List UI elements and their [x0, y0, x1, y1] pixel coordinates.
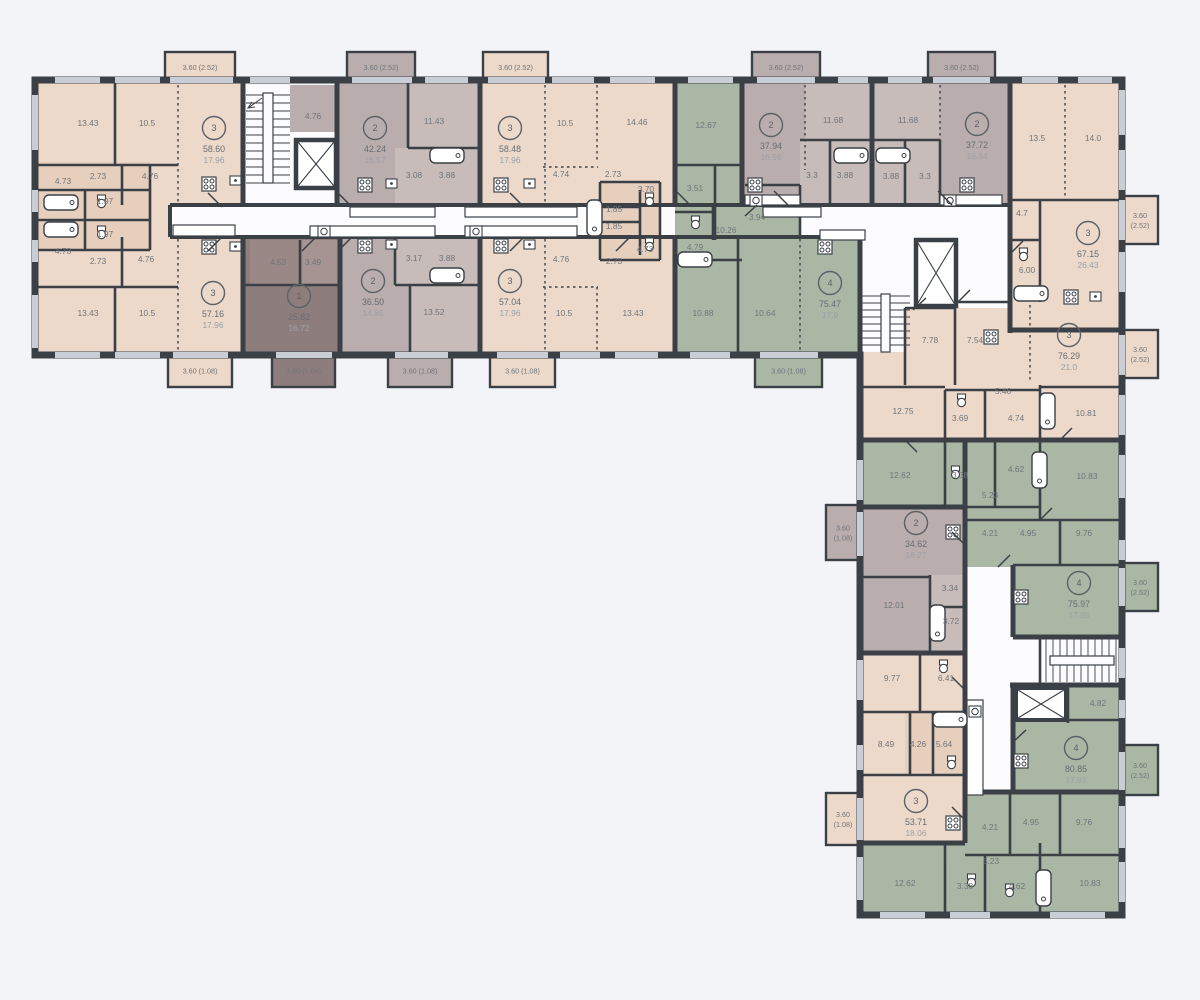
room-area-label: 2.73 [605, 169, 622, 179]
elevator-icon [296, 140, 336, 188]
sink-icon [230, 242, 241, 251]
apartment-total-area: 57.16 [202, 309, 224, 319]
room-area-label: 12.01 [884, 600, 905, 610]
room-area-label: 3.34 [942, 583, 959, 593]
room-area-label: 3.49 [305, 257, 322, 267]
apartment-total-area: 34.62 [905, 539, 927, 549]
room-area-label: 9.76 [1076, 528, 1093, 538]
room-area-label: 10.64 [755, 308, 776, 318]
room-area-label: 2.73 [606, 256, 623, 266]
room-area-label: 4.76 [553, 254, 570, 264]
balcony: 3.60(2.52) [1122, 330, 1158, 378]
balcony-dimension-label: (2.52) [1131, 221, 1150, 230]
room-area-label: 10.5 [139, 308, 156, 318]
apartment-room-count: 3 [507, 123, 512, 133]
balcony-dimension-label: 3.60 (1.08) [771, 367, 806, 376]
balcony: 3.60(1.08) [826, 505, 860, 560]
room-area-label: 3.69 [952, 413, 969, 423]
room-area-label: 7.54 [967, 335, 984, 345]
bathtub-icon [430, 148, 464, 163]
room-region [290, 85, 350, 132]
room-area-label: 4.73 [637, 244, 654, 254]
elevator-icon [916, 240, 956, 306]
toilet-icon [646, 193, 654, 206]
apartment-room-count: 3 [913, 796, 918, 806]
stove-icon [946, 816, 960, 830]
room-area-label: 6.00 [1019, 265, 1036, 275]
elevator-icon [1016, 688, 1066, 720]
room-area-label: 4.62 [1008, 464, 1025, 474]
balcony-dimension-label: (1.08) [834, 534, 853, 543]
stove-icon [748, 178, 762, 192]
apartment-total-area: 67.15 [1077, 249, 1099, 259]
room-area-label: 3.38 [952, 470, 969, 480]
room-region [872, 83, 940, 140]
bathtub-icon [678, 252, 712, 267]
apartment-living-area: 17.96 [500, 155, 521, 165]
room-area-label: 3.88 [439, 170, 456, 180]
washer-icon [318, 226, 330, 237]
apartment-living-area: 21.0 [1061, 362, 1078, 372]
room-region [805, 83, 872, 140]
balcony-dimension-label: 3.60 [1133, 761, 1147, 770]
room-area-label: 2.73 [90, 171, 107, 181]
balcony-dimension-label: 3.60 (1.08) [403, 367, 438, 376]
apartment-total-area: 58.60 [203, 144, 225, 154]
balcony: 3.60 (1.08) [272, 355, 335, 387]
room-area-label: 9.77 [884, 673, 901, 683]
room-area-label: 4.76 [142, 171, 159, 181]
room-area-label: 3.08 [406, 170, 423, 180]
washer-icon [969, 706, 981, 717]
bathtub-icon [1014, 286, 1048, 301]
room-area-label: 3.72 [943, 616, 960, 626]
stove-icon [960, 178, 974, 192]
floor-plan-drawing: 3.60 (2.52)3.60 (2.52)3.60 (2.52)3.60 (2… [0, 0, 1200, 1000]
stove-icon [202, 177, 216, 191]
washer-icon [470, 226, 482, 237]
room-region [410, 285, 480, 352]
apartment-living-area: 17.9 [822, 310, 839, 320]
apartment-room-count: 2 [974, 119, 979, 129]
room-region [410, 83, 480, 148]
room-area-label: 1.97 [97, 196, 114, 206]
room-area-label: 3.17 [406, 253, 423, 263]
bathtub-icon [834, 148, 868, 163]
sink-icon [1090, 292, 1101, 301]
stove-icon [494, 178, 508, 192]
apartment-living-area: 18.06 [906, 828, 927, 838]
room-area-label: 13.43 [623, 308, 644, 318]
room-area-label: 4.76 [305, 111, 322, 121]
room-area-label: 10.81 [1076, 408, 1097, 418]
apartment-room-count: 3 [507, 276, 512, 286]
room-area-label: 11.68 [898, 115, 919, 125]
apartment-room-count: 1 [296, 291, 301, 301]
balcony-dimension-label: 3.60 [1133, 211, 1147, 220]
apartment-room-count: 3 [1085, 228, 1090, 238]
apartment-total-area: 37.94 [760, 141, 782, 151]
room-area-label: 4.74 [553, 169, 570, 179]
balcony-dimension-label: 3.60 [836, 524, 850, 533]
apartment-total-area: 57.04 [499, 297, 521, 307]
room-area-label: 11.68 [823, 115, 844, 125]
apartment-living-area: 17.96 [203, 320, 224, 330]
sink-icon [524, 240, 535, 249]
bathtub-icon [933, 712, 967, 727]
balcony: 3.60(2.52) [1122, 563, 1158, 611]
apartment-room-count: 4 [827, 278, 832, 288]
bathtub-icon [1040, 393, 1055, 429]
apartment-total-area: 80.85 [1065, 764, 1087, 774]
apartment-room-count: 2 [768, 120, 773, 130]
room-area-label: 12.67 [696, 120, 717, 130]
balcony-dimension-label: (1.08) [834, 820, 853, 829]
balcony-dimension-label: 3.60 (2.52) [944, 63, 979, 72]
apartment-room-count: 2 [370, 276, 375, 286]
washer-icon [944, 195, 956, 206]
balcony-dimension-label: 3.60 (2.52) [498, 63, 533, 72]
room-area-label: 10.5 [556, 308, 573, 318]
stove-icon [1014, 754, 1028, 768]
room-area-label: 5.64 [936, 739, 953, 749]
apartment-room-count: 4 [1076, 578, 1081, 588]
balcony: 3.60 (1.08) [388, 355, 452, 387]
room-area-label: 10.83 [1080, 878, 1101, 888]
room-area-label: 10.83 [1077, 471, 1098, 481]
apartment-total-area: 75.97 [1068, 599, 1090, 609]
room-area-label: 4.62 [1009, 881, 1026, 891]
room-area-label: 4.82 [1090, 698, 1107, 708]
room-area-label: 13.43 [78, 118, 99, 128]
stove-icon [202, 240, 216, 254]
floor-plan-page: 3.60 (2.52)3.60 (2.52)3.60 (2.52)3.60 (2… [0, 0, 1200, 1000]
apartment-total-area: 25.82 [288, 312, 310, 322]
room-area-label: 2.73 [90, 256, 107, 266]
apartment-total-area: 58.48 [499, 144, 521, 154]
sink-icon [524, 179, 535, 188]
balcony-dimension-label: (2.52) [1131, 588, 1150, 597]
room-area-label: 8.49 [878, 739, 895, 749]
balcony: 3.60(1.08) [826, 793, 860, 845]
apartment-room-count: 2 [913, 518, 918, 528]
room-area-label: 9.76 [1076, 817, 1093, 827]
balcony: 3.60 (1.08) [490, 355, 555, 387]
room-area-label: 4.95 [1020, 528, 1037, 538]
stove-icon [984, 330, 998, 344]
apartment-room-count: 4 [1073, 743, 1078, 753]
stove-icon [818, 240, 832, 254]
balcony-dimension-label: 3.60 (1.08) [183, 367, 218, 376]
room-area-label: 10.5 [139, 118, 156, 128]
toilet-icon [958, 394, 966, 407]
apartment-total-area: 53.71 [905, 817, 927, 827]
balcony-dimension-label: 3.60 (2.52) [769, 63, 804, 72]
room-area-label: 13.5 [1029, 133, 1046, 143]
room-area-label: 4.7 [1016, 208, 1028, 218]
room-area-label: 13.43 [78, 308, 99, 318]
room-area-label: 10.26 [716, 225, 737, 235]
room-area-label: 3.70 [638, 184, 655, 194]
bathtub-icon [876, 148, 910, 163]
room-area-label: 12.75 [893, 406, 914, 416]
sink-icon [386, 240, 397, 249]
apartment-total-area: 37.72 [966, 140, 988, 150]
apartment-total-area: 36.50 [362, 297, 384, 307]
apartment-room-count: 3 [1066, 330, 1071, 340]
apartment-total-area: 75.47 [819, 299, 841, 309]
toilet-icon [948, 756, 956, 769]
room-area-label: 13.52 [424, 307, 445, 317]
toilet-icon [692, 216, 700, 229]
bathtub-icon [430, 268, 464, 283]
apartment-living-area: 16.57 [365, 155, 386, 165]
bathtub-icon [587, 200, 602, 236]
apartment-region [675, 83, 742, 207]
sink-icon [386, 179, 397, 188]
stove-icon [358, 178, 372, 192]
room-area-label: 7.78 [922, 335, 939, 345]
room-area-label: 10.88 [693, 308, 714, 318]
balcony-dimension-label: 3.60 [1133, 578, 1147, 587]
balcony: 3.60(2.52) [1122, 745, 1158, 795]
balcony: 3.60 (1.08) [755, 355, 822, 387]
sink-icon [230, 176, 241, 185]
room-area-label: 3.88 [439, 253, 456, 263]
stove-icon [358, 239, 372, 253]
bathtub-icon [44, 195, 78, 210]
balcony-dimension-label: 3.60 (2.52) [364, 63, 399, 72]
apartment-living-area: 17.85 [1069, 610, 1090, 620]
apartment-region [150, 205, 170, 237]
washer-icon [750, 195, 762, 206]
room-area-label: 10.5 [557, 118, 574, 128]
stove-icon [1064, 290, 1078, 304]
apartment-living-area: 17.96 [500, 308, 521, 318]
balcony-dimension-label: 3.60 [836, 810, 850, 819]
room-area-label: 4.73 [55, 246, 72, 256]
balcony-dimension-label: (2.52) [1131, 355, 1150, 364]
room-area-label: 3.51 [687, 183, 704, 193]
room-area-label: 1.85 [606, 221, 623, 231]
room-area-label: 4.26 [910, 739, 927, 749]
room-area-label: 4.21 [982, 822, 999, 832]
apartment-room-count: 3 [210, 288, 215, 298]
room-area-label: 12.62 [890, 470, 911, 480]
room-area-label: 5.46 [995, 386, 1012, 396]
room-area-label: 14.0 [1085, 133, 1102, 143]
room-area-label: 3.38 [957, 881, 974, 891]
room-area-label: 4.21 [982, 528, 999, 538]
apartment-room-count: 3 [211, 123, 216, 133]
apartment-total-area: 42.24 [364, 144, 386, 154]
apartment-living-area: 16.56 [761, 152, 782, 162]
room-area-label: 14.46 [627, 117, 648, 127]
room-area-label: 1.85 [606, 204, 623, 214]
room-area-label: 6.41 [938, 673, 955, 683]
toilet-icon [1020, 248, 1028, 261]
apartment-living-area: 17.96 [204, 155, 225, 165]
room-area-label: 3.88 [837, 170, 854, 180]
toilet-icon [940, 660, 948, 673]
room-area-label: 4.76 [138, 254, 155, 264]
balcony-dimension-label: (2.52) [1131, 771, 1150, 780]
balcony-dimension-label: 3.60 (2.52) [183, 63, 218, 72]
apartment-living-area: 16.34 [967, 151, 988, 161]
apartment-living-area: 16.72 [289, 323, 310, 333]
room-area-label: 4.79 [687, 242, 704, 252]
room-area-label: 12.62 [895, 878, 916, 888]
apartment-living-area: 26.43 [1078, 260, 1099, 270]
apartment-living-area: 16.27 [906, 550, 927, 560]
bathtub-icon [1036, 870, 1051, 906]
room-area-label: 11.43 [424, 116, 445, 126]
balcony-dimension-label: 3.60 [1133, 345, 1147, 354]
bathtub-icon [1032, 452, 1047, 488]
apartment-living-area: 14.85 [363, 308, 384, 318]
apartment-total-area: 76.29 [1058, 351, 1080, 361]
room-area-label: 3.88 [883, 171, 900, 181]
apartment-room-count: 2 [372, 123, 377, 133]
room-area-label: 4.74 [1008, 413, 1025, 423]
stove-icon [494, 239, 508, 253]
room-area-label: 3.94 [749, 212, 766, 222]
room-area-label: 4.73 [55, 176, 72, 186]
stove-icon [1014, 590, 1028, 604]
balcony: 3.60 (1.08) [168, 355, 232, 387]
room-area-label: 1.97 [97, 229, 114, 239]
room-area-label: 3.3 [919, 171, 931, 181]
room-area-label: 5.23 [982, 490, 999, 500]
apartment-living-area: 17.91 [1066, 775, 1087, 785]
room-area-label: 5.23 [983, 856, 1000, 866]
room-area-label: 3.3 [806, 170, 818, 180]
balcony-dimension-label: 3.60 (1.08) [286, 367, 321, 376]
room-area-label: 4.53 [270, 257, 287, 267]
balcony: 3.60(2.52) [1122, 196, 1158, 244]
bathtub-icon [44, 222, 78, 237]
balcony-dimension-label: 3.60 (1.08) [505, 367, 540, 376]
room-area-label: 4.95 [1023, 817, 1040, 827]
